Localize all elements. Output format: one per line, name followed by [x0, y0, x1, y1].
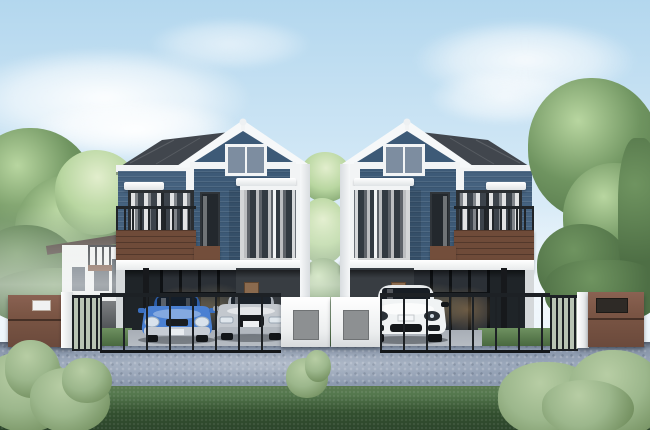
balcony-wood-panel	[116, 230, 196, 260]
awning-bar	[354, 178, 414, 186]
awning-bar	[124, 182, 164, 190]
gate-wall-right	[588, 292, 644, 347]
mailbox-slot	[596, 298, 628, 313]
finial-ball	[240, 119, 247, 126]
center-gate-post	[281, 297, 330, 347]
awning-bar	[236, 178, 296, 186]
center-gate-post	[331, 297, 380, 347]
balcony-wood-panel	[454, 230, 534, 260]
wall-groove	[8, 319, 62, 321]
side-gate	[550, 295, 578, 351]
soffit-shadow	[124, 270, 302, 278]
scene	[0, 0, 650, 430]
main-window	[240, 186, 300, 262]
front-fence-right	[380, 293, 550, 353]
bush-bottom-right	[542, 380, 634, 430]
wall-groove	[588, 318, 644, 320]
background-house-window	[72, 267, 85, 291]
attic-window	[225, 144, 267, 176]
awning-bar	[486, 182, 526, 190]
house-number-plate	[32, 300, 51, 311]
background-house-window	[94, 271, 109, 291]
soffit-shadow	[348, 270, 526, 278]
finial-ball	[404, 119, 411, 126]
side-gate	[72, 295, 100, 351]
bush-bottom-left	[62, 358, 112, 403]
gate-post-panel	[293, 310, 319, 340]
gate-post-panel	[343, 310, 369, 340]
front-fence-left	[100, 293, 281, 353]
attic-window	[383, 144, 425, 176]
main-window	[350, 186, 410, 262]
bush-center	[305, 350, 331, 382]
gate-wall-left	[8, 295, 62, 347]
cloud	[150, 18, 310, 70]
